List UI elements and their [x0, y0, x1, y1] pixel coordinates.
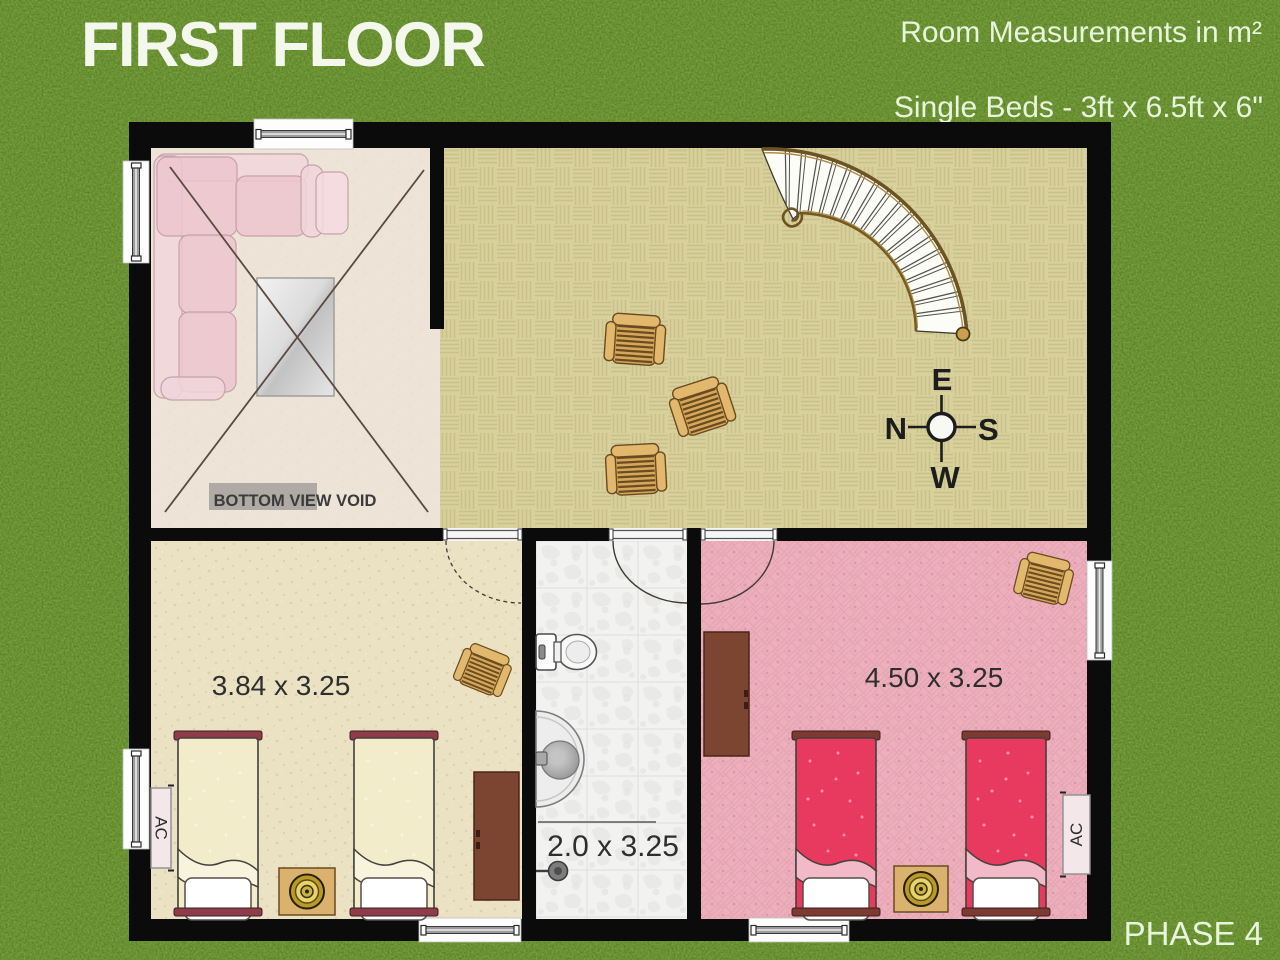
svg-text:S: S — [978, 412, 999, 447]
svg-text:N: N — [885, 411, 907, 446]
svg-text:FIRST FLOOR: FIRST FLOOR — [81, 10, 485, 80]
svg-text:W: W — [930, 460, 960, 495]
svg-text:AC: AC — [1067, 823, 1086, 847]
svg-text:BOTTOM VIEW VOID: BOTTOM VIEW VOID — [214, 492, 377, 510]
svg-text:2.0 x 3.25: 2.0 x 3.25 — [547, 830, 679, 863]
svg-text:Room Measurements in m²: Room Measurements in m² — [900, 16, 1262, 49]
svg-text:PHASE 4: PHASE 4 — [1124, 915, 1263, 952]
svg-text:Single Beds - 3ft x 6.5ft x 6": Single Beds - 3ft x 6.5ft x 6" — [894, 91, 1263, 124]
svg-text:3.84 x 3.25: 3.84 x 3.25 — [212, 670, 351, 701]
svg-text:4.50 x 3.25: 4.50 x 3.25 — [865, 662, 1004, 693]
svg-text:E: E — [932, 362, 953, 397]
svg-text:AC: AC — [152, 816, 171, 840]
